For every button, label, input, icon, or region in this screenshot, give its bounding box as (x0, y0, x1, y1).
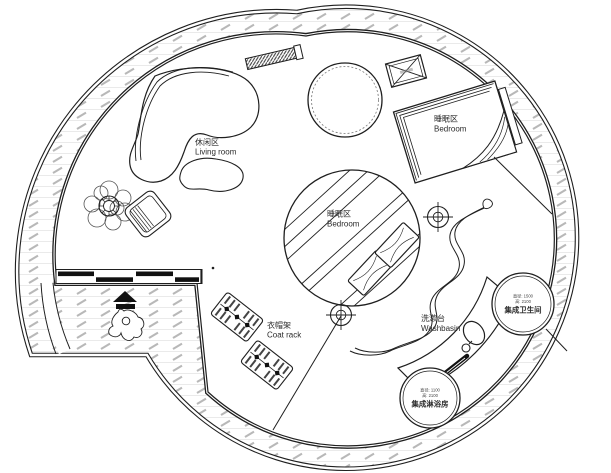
shower-unit: 直径: 1100 高: 2100 集成淋浴房 (400, 368, 460, 428)
coat-rack-label-zh: 衣帽架 (267, 320, 291, 330)
bathroom-spec-2: 高: 2100 (515, 298, 532, 305)
bedroom-center-label-en: Bedroom (327, 220, 360, 229)
bedroom-upper-label-en: Bedroom (434, 125, 467, 134)
shower-spec-1: 直径: 1100 (420, 387, 440, 393)
bathroom-unit-label: 集成卫生间 (504, 306, 542, 315)
round-table (308, 63, 382, 137)
shower-unit-label: 集成淋浴房 (411, 400, 449, 409)
bedroom-upper-label-zh: 睡眠区 (434, 115, 458, 124)
dot-mark (212, 267, 215, 270)
floor-plan-page: 直径: 1500 高: 2100 集成卫生间 直径: 1100 高: 2100 … (0, 0, 611, 473)
floor-plan-drawing: 直径: 1500 高: 2100 集成卫生间 直径: 1100 高: 2100 … (0, 0, 611, 473)
washbasin-label-zh: 洗漱台 (421, 313, 445, 323)
bedroom-center-label-zh: 睡眠区 (327, 210, 351, 219)
washbasin-label-en: Washbasin (421, 324, 460, 333)
bathroom-unit: 直径: 1500 高: 2100 集成卫生间 (492, 273, 554, 335)
coat-rack-label-en: Coat rack (267, 331, 302, 340)
living-room-label-zh: 休闲区 (195, 137, 219, 147)
sliding-door (56, 270, 202, 284)
shower-spec-2: 高: 2100 (422, 392, 439, 399)
bathroom-spec-1: 直径: 1500 (513, 293, 534, 299)
living-room-label-en: Living room (195, 148, 237, 157)
